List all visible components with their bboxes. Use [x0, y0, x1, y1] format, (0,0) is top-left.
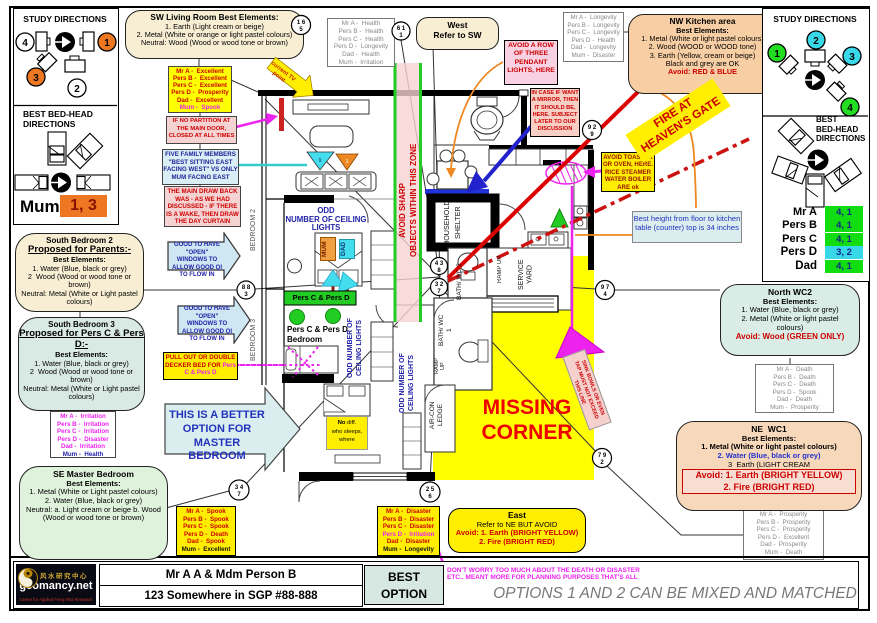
svg-text:6 1: 6 1: [397, 26, 406, 32]
svg-text:1 6: 1 6: [297, 20, 306, 26]
